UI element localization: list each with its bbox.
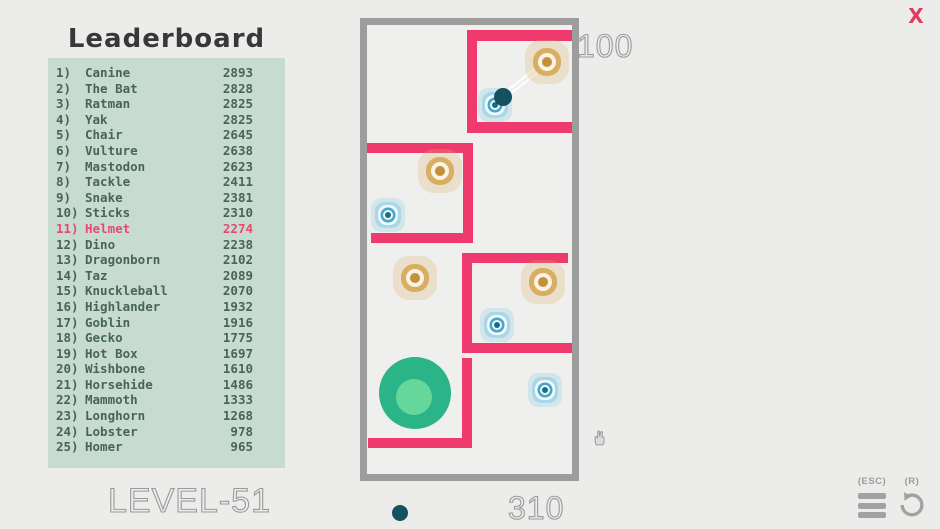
leaderboard-rank: 7)	[56, 159, 85, 175]
leaderboard-row: 3)Ratman2825	[56, 96, 253, 112]
leaderboard-row: 1)Canine2893	[56, 65, 253, 81]
leaderboard-row: 10)Sticks2310	[56, 205, 253, 221]
menu-bar	[858, 512, 886, 518]
target-orange	[435, 166, 445, 176]
esc-key-label: (ESC)	[854, 476, 890, 487]
leaderboard-name: Yak	[85, 112, 223, 128]
leaderboard-panel: 1)Canine28932)The Bat28283)Ratman28254)Y…	[48, 58, 285, 468]
leaderboard-name: Mammoth	[85, 392, 223, 408]
leaderboard-score: 1916	[223, 315, 253, 331]
leaderboard-rank: 22)	[56, 392, 85, 408]
leaderboard-row: 21)Horsehide1486	[56, 377, 253, 393]
target-blue	[542, 387, 548, 393]
leaderboard-score: 2893	[223, 65, 253, 81]
target-blue	[494, 322, 500, 328]
leaderboard-score: 2623	[223, 159, 253, 175]
exit-zone-inner	[396, 379, 432, 415]
leaderboard-rank: 25)	[56, 439, 85, 455]
leaderboard-name: Ratman	[85, 96, 223, 112]
leaderboard-name: Horsehide	[85, 377, 223, 393]
level-label: LEVEL-51	[108, 482, 271, 521]
leaderboard-row: 22)Mammoth1333	[56, 392, 253, 408]
leaderboard-rank: 8)	[56, 174, 85, 190]
leaderboard-rank: 5)	[56, 127, 85, 143]
leaderboard-score: 2825	[223, 112, 253, 128]
leaderboard-row: 13)Dragonborn2102	[56, 252, 253, 268]
leaderboard-score: 1697	[223, 346, 253, 362]
leaderboard-row: 9)Snake2381	[56, 190, 253, 206]
leaderboard-score: 1268	[223, 408, 253, 424]
leaderboard-row: 5)Chair2645	[56, 127, 253, 143]
leaderboard-name: Taz	[85, 268, 223, 284]
leaderboard-rank: 12)	[56, 237, 85, 253]
leaderboard-score: 2070	[223, 283, 253, 299]
leaderboard-row: 24)Lobster978	[56, 424, 253, 440]
hand-cursor-icon	[592, 428, 607, 446]
leaderboard-row: 16)Highlander1932	[56, 299, 253, 315]
leaderboard-name: Tackle	[85, 174, 223, 190]
leaderboard-rank: 1)	[56, 65, 85, 81]
leaderboard-rank: 13)	[56, 252, 85, 268]
wall-segment	[467, 30, 477, 133]
leaderboard-name: Knuckleball	[85, 283, 223, 299]
leaderboard-row: 8)Tackle2411	[56, 174, 253, 190]
leaderboard-score: 2102	[223, 252, 253, 268]
leaderboard-row: 18)Gecko1775	[56, 330, 253, 346]
wall-segment	[462, 358, 472, 448]
score-top: 100	[577, 28, 633, 65]
leaderboard-rank: 10)	[56, 205, 85, 221]
leaderboard-score: 2089	[223, 268, 253, 284]
leaderboard-row: 20)Wishbone1610	[56, 361, 253, 377]
leaderboard-rank: 24)	[56, 424, 85, 440]
leaderboard-rank: 15)	[56, 283, 85, 299]
menu-bar	[858, 503, 886, 509]
leaderboard-score: 2411	[223, 174, 253, 190]
score-bottom: 310	[508, 490, 564, 527]
target-orange	[538, 277, 548, 287]
leaderboard-row: 6)Vulture2638	[56, 143, 253, 159]
game-scene	[367, 25, 572, 474]
leaderboard-name: Goblin	[85, 315, 223, 331]
leaderboard-name: Hot Box	[85, 346, 223, 362]
target-blue	[385, 212, 391, 218]
leaderboard-rank: 11)	[56, 221, 85, 237]
leaderboard-name: Dragonborn	[85, 252, 223, 268]
leaderboard-rank: 4)	[56, 112, 85, 128]
leaderboard-rank: 14)	[56, 268, 85, 284]
leaderboard-score: 1486	[223, 377, 253, 393]
leaderboard-score: 1333	[223, 392, 253, 408]
wall-segment	[462, 343, 572, 353]
game-area[interactable]	[360, 18, 579, 481]
leaderboard-row: 15)Knuckleball2070	[56, 283, 253, 299]
leaderboard-score: 2638	[223, 143, 253, 159]
target-orange	[542, 57, 552, 67]
wall-segment	[367, 143, 473, 153]
leaderboard-name: Gecko	[85, 330, 223, 346]
menu-control: (ESC)	[854, 476, 890, 522]
leaderboard-name: Homer	[85, 439, 230, 455]
leaderboard-rank: 20)	[56, 361, 85, 377]
leaderboard-score: 2828	[223, 81, 253, 97]
leaderboard-score: 2238	[223, 237, 253, 253]
menu-bar	[858, 493, 886, 499]
leaderboard-score: 2645	[223, 127, 253, 143]
leaderboard-score: 965	[230, 439, 253, 455]
leaderboard-title: Leaderboard	[48, 24, 285, 54]
restart-control: (R)	[894, 476, 930, 524]
wall-segment	[463, 143, 473, 243]
leaderboard-name: Lobster	[85, 424, 230, 440]
leaderboard-row: 17)Goblin1916	[56, 315, 253, 331]
wall-segment	[467, 30, 572, 41]
leaderboard-score: 2825	[223, 96, 253, 112]
leaderboard-score: 2274	[223, 221, 253, 237]
leaderboard-row: 25)Homer965	[56, 439, 253, 455]
leaderboard-row: 11)Helmet2274	[56, 221, 253, 237]
wall-segment	[462, 253, 568, 263]
leaderboard-rank: 19)	[56, 346, 85, 362]
leaderboard-row: 14)Taz2089	[56, 268, 253, 284]
leaderboard-name: The Bat	[85, 81, 223, 97]
wall-segment	[371, 233, 473, 243]
target-orange	[410, 273, 420, 283]
wall-segment	[368, 438, 472, 448]
leaderboard-name: Canine	[85, 65, 223, 81]
leaderboard-name: Mastodon	[85, 159, 223, 175]
leaderboard-rank: 6)	[56, 143, 85, 159]
leaderboard-row: 4)Yak2825	[56, 112, 253, 128]
leaderboard-name: Highlander	[85, 299, 223, 315]
leaderboard-score: 978	[230, 424, 253, 440]
restart-icon[interactable]	[897, 489, 927, 519]
leaderboard-score: 1610	[223, 361, 253, 377]
leaderboard-name: Dino	[85, 237, 223, 253]
ball[interactable]	[494, 88, 512, 106]
leaderboard-name: Sticks	[85, 205, 223, 221]
leaderboard-rank: 16)	[56, 299, 85, 315]
leaderboard-name: Chair	[85, 127, 223, 143]
leaderboard-name: Wishbone	[85, 361, 223, 377]
wall-segment	[467, 122, 572, 133]
menu-icon[interactable]	[858, 493, 886, 518]
leaderboard-score: 2310	[223, 205, 253, 221]
leaderboard-rank: 2)	[56, 81, 85, 97]
leaderboard-score: 1775	[223, 330, 253, 346]
leaderboard-row: 12)Dino2238	[56, 237, 253, 253]
leaderboard-rank: 17)	[56, 315, 85, 331]
leaderboard-name: Helmet	[85, 221, 223, 237]
wall-segment	[462, 253, 472, 353]
leaderboard-rank: 18)	[56, 330, 85, 346]
leaderboard-score: 1932	[223, 299, 253, 315]
leaderboard-name: Snake	[85, 190, 223, 206]
leaderboard-row: 19)Hot Box1697	[56, 346, 253, 362]
leaderboard-rank: 3)	[56, 96, 85, 112]
close-button[interactable]: X	[902, 4, 930, 30]
progress-dot	[392, 505, 408, 521]
leaderboard-name: Longhorn	[85, 408, 223, 424]
r-key-label: (R)	[894, 476, 930, 487]
leaderboard-row: 2)The Bat2828	[56, 81, 253, 97]
leaderboard-rank: 21)	[56, 377, 85, 393]
leaderboard-row: 23)Longhorn1268	[56, 408, 253, 424]
leaderboard-list: 1)Canine28932)The Bat28283)Ratman28254)Y…	[56, 65, 253, 455]
leaderboard-rank: 9)	[56, 190, 85, 206]
leaderboard-row: 7)Mastodon2623	[56, 159, 253, 175]
leaderboard-score: 2381	[223, 190, 253, 206]
leaderboard-name: Vulture	[85, 143, 223, 159]
exit-zone	[379, 357, 451, 429]
leaderboard-rank: 23)	[56, 408, 85, 424]
